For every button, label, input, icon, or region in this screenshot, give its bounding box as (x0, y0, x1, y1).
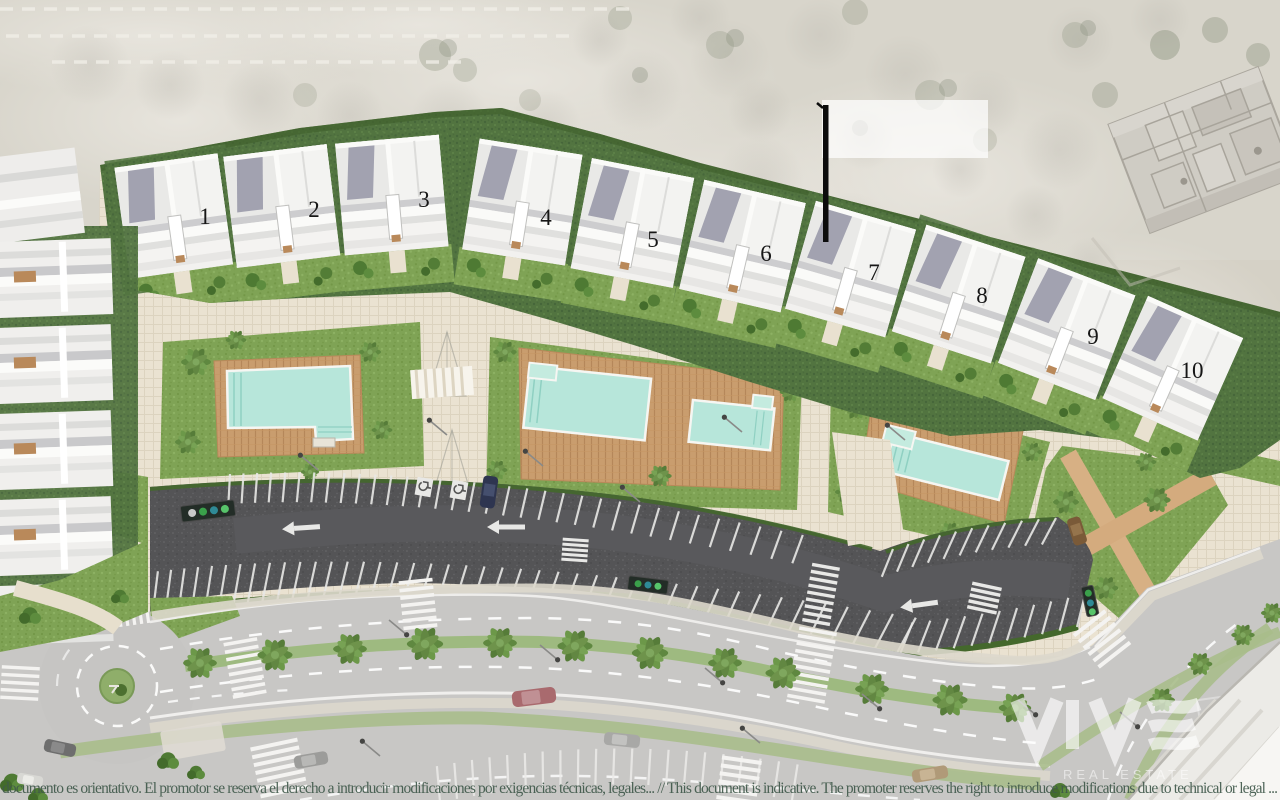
svg-text:3: 3 (418, 187, 430, 212)
svg-text:6: 6 (760, 241, 772, 266)
svg-text:1: 1 (199, 204, 211, 229)
svg-text:4: 4 (540, 205, 552, 230)
svg-text:2: 2 (308, 197, 320, 222)
svg-text:5: 5 (647, 227, 659, 252)
svg-text:10: 10 (1181, 358, 1204, 383)
svg-text:8: 8 (976, 283, 988, 308)
svg-text:7: 7 (868, 260, 880, 285)
svg-text:9: 9 (1087, 324, 1099, 349)
svg-text:documento es orientativo. El p: documento es orientativo. El promotor se… (2, 780, 1278, 797)
